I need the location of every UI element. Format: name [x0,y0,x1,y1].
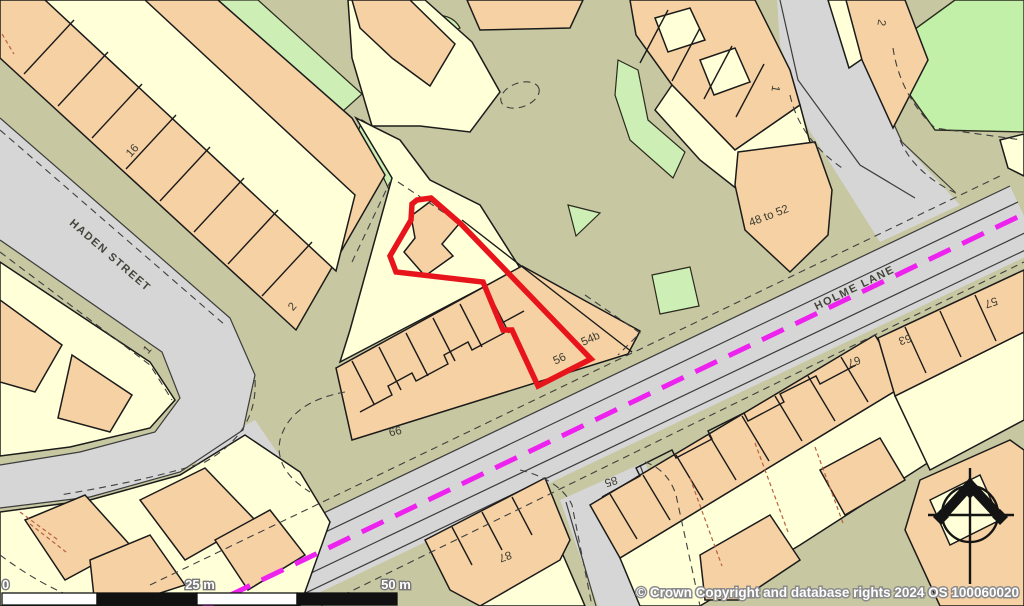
scale-tick-50: 50 m [381,577,411,592]
copyright-attribution: © Crown Copyright and database rights 20… [636,585,1019,600]
map-viewport: HADEN STREET HOLME LANE 16 2 1 1 2 48 to… [0,0,1024,606]
map-canvas: HADEN STREET HOLME LANE 16 2 1 1 2 48 to… [0,0,1024,606]
scale-tick-25: 25 m [185,577,215,592]
green-parcel-center [652,267,699,314]
scale-tick-0: 0 [2,577,9,592]
